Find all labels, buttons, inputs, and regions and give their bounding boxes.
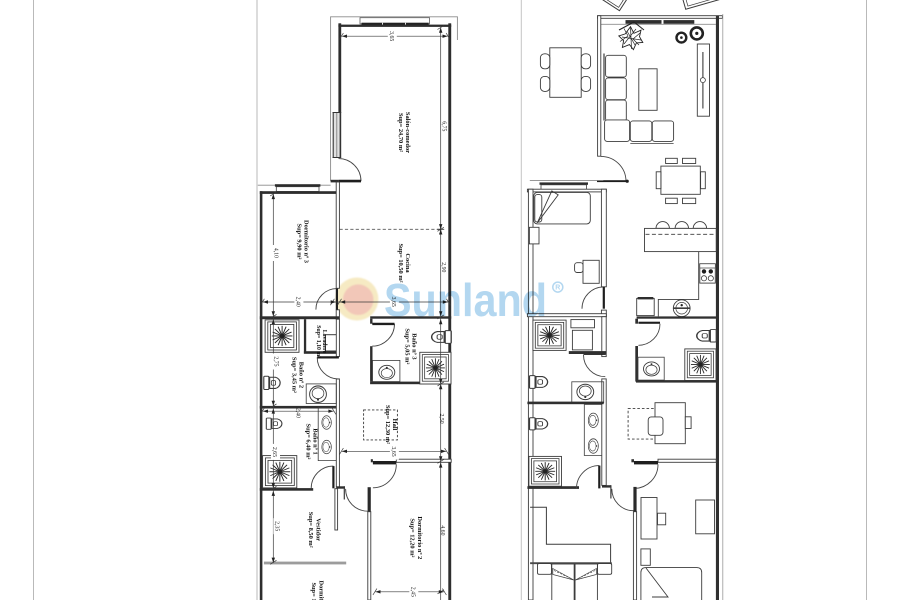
svg-text:Baño nº 1: Baño nº 1: [312, 428, 319, 454]
svg-text:2,40: 2,40: [295, 297, 301, 307]
svg-text:Sup= 10,10 m²: Sup= 10,10 m²: [310, 582, 317, 600]
svg-text:Sup= 5,05 m²: Sup= 5,05 m²: [403, 328, 410, 364]
svg-text:2,65: 2,65: [271, 447, 277, 457]
svg-text:2,90: 2,90: [440, 262, 446, 272]
svg-text:2,35: 2,35: [274, 521, 280, 531]
svg-text:Sup= 12,20 m²: Sup= 12,20 m²: [409, 518, 416, 557]
svg-text:Dormitorio nº 1: Dormitorio nº 1: [317, 581, 324, 600]
svg-text:2,75: 2,75: [272, 356, 278, 366]
svg-text:2,50: 2,50: [438, 414, 444, 424]
svg-text:Lavadero: Lavadero: [321, 330, 327, 354]
svg-text:Dormitorio nº 3: Dormitorio nº 3: [303, 220, 310, 263]
svg-text:R: R: [555, 285, 560, 292]
svg-text:Sup= 3,45 m²: Sup= 3,45 m²: [290, 357, 297, 393]
svg-text:4,60: 4,60: [439, 525, 445, 535]
svg-text:3,65: 3,65: [388, 31, 394, 41]
svg-text:Sup= 12,30 m²: Sup= 12,30 m²: [384, 405, 391, 444]
svg-text:Sup= 6,40 m²: Sup= 6,40 m²: [304, 424, 311, 460]
svg-text:Baño nº 2: Baño nº 2: [298, 362, 305, 388]
svg-text:2,40: 2,40: [295, 408, 301, 418]
svg-text:Sup= 1,10 m²: Sup= 1,10 m²: [315, 325, 321, 358]
svg-text:Baño nº 3: Baño nº 3: [411, 333, 418, 359]
svg-text:Dormitorio nº 2: Dormitorio nº 2: [416, 516, 423, 559]
svg-text:Sup= 24,70 m²: Sup= 24,70 m²: [397, 113, 404, 152]
svg-text:6,75: 6,75: [440, 121, 446, 131]
svg-text:4,10: 4,10: [272, 248, 278, 258]
svg-text:2,45: 2,45: [410, 587, 416, 597]
svg-text:3,65: 3,65: [390, 447, 396, 457]
svg-text:Sup= 9,90 m²: Sup= 9,90 m²: [295, 224, 302, 260]
svg-text:Sup= 8,50 m²: Sup= 8,50 m²: [307, 512, 314, 548]
svg-text:Sunland: Sunland: [384, 274, 547, 326]
svg-text:Cocina: Cocina: [404, 253, 411, 273]
svg-text:Vestidor: Vestidor: [314, 518, 321, 541]
svg-text:Salón-comedor: Salón-comedor: [404, 112, 411, 153]
svg-text:Hall: Hall: [391, 419, 398, 431]
